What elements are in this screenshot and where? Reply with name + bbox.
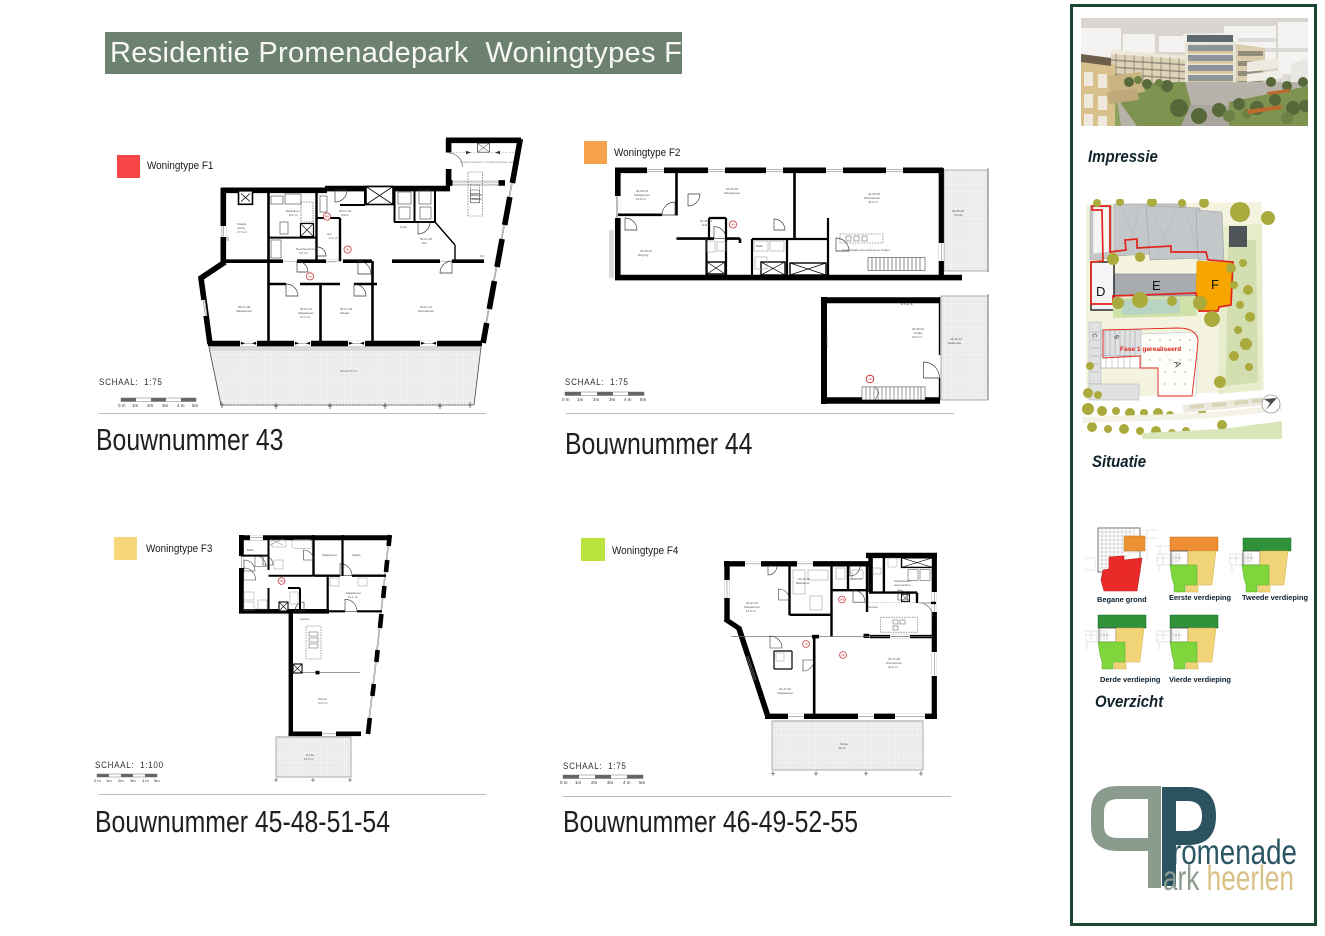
svg-text:Slaapkamer: Slaapkamer [777, 691, 793, 695]
svg-text:43 m²: 43 m² [838, 746, 846, 750]
svg-text:Derde verdieping: Derde verdieping [1100, 675, 1161, 684]
svg-text:Vierde verdieping: Vierde verdieping [1169, 675, 1231, 684]
svg-text:Slaapk.: Slaapk. [352, 553, 362, 557]
svg-text:TR: TR [868, 377, 872, 381]
svg-text:1m: 1m [575, 780, 582, 785]
svg-text:Slaapkamer: Slaapkamer [724, 191, 740, 195]
svg-text:24.6 m²: 24.6 m² [912, 335, 922, 339]
svg-text:44.6 m²: 44.6 m² [888, 665, 898, 669]
svg-text:Slaapkamer: Slaapkamer [322, 553, 337, 557]
svg-text:Opstelplaats wasmachine en dro: Opstelplaats wasmachine en droger [842, 248, 890, 252]
svg-text:2m: 2m [118, 778, 124, 783]
svg-text:WM: WM [731, 223, 735, 226]
svg-text:Entree: Entree [702, 223, 711, 227]
svg-text:02-47-07: 02-47-07 [850, 577, 862, 581]
svg-text:Terras: Terras [954, 213, 963, 217]
svg-text:3m: 3m [130, 778, 136, 783]
svg-text:WM: WM [279, 581, 283, 583]
svg-text:Keuken: Keuken [300, 617, 310, 621]
svg-text:onderbouwkasten 1.1 bediening: onderbouwkasten 1.1 bediening boven aanr… [460, 160, 515, 164]
svg-text:Berging: Berging [638, 253, 649, 257]
svg-text:WM: WM [325, 215, 329, 218]
svg-text:Badk.: Badk. [756, 244, 764, 248]
svg-text:ark heerlen: ark heerlen [1163, 859, 1294, 898]
svg-text:F: F [1211, 277, 1219, 292]
svg-text:6.8 m²: 6.8 m² [299, 251, 308, 255]
svg-text:0 m: 0 m [560, 780, 568, 785]
svg-text:1m: 1m [106, 778, 112, 783]
svg-text:3m: 3m [607, 780, 614, 785]
svg-text:31.6 m²: 31.6 m² [318, 701, 328, 705]
svg-text:19.5 m²: 19.5 m² [304, 757, 314, 761]
svg-text:14.8 m²: 14.8 m² [746, 609, 756, 613]
svg-text:44.2 m²: 44.2 m² [868, 200, 878, 204]
svg-text:Terras 57 m²: Terras 57 m² [340, 369, 357, 373]
svg-text:Hal: Hal [422, 241, 427, 245]
svg-text:Woonkamer: Woonkamer [418, 309, 434, 313]
svg-text:Schsl: Schsl [341, 213, 349, 217]
svg-text:◄ 4.93 ►: ◄ 4.93 ► [825, 335, 829, 348]
svg-text:Keuken: Keuken [868, 605, 879, 609]
svg-text:TR: TR [804, 644, 807, 646]
svg-text:12.1 m²: 12.1 m² [348, 595, 358, 599]
svg-text:Eerste verdieping: Eerste verdieping [1169, 593, 1232, 602]
svg-text:0 m: 0 m [94, 778, 101, 783]
svg-text:E: E [1152, 278, 1161, 293]
svg-text:D: D [1096, 284, 1105, 299]
svg-text:wasmachine: wasmachine [894, 583, 911, 587]
svg-text:Keuken: Keuken [472, 197, 483, 201]
svg-text:1m: 1m [132, 403, 139, 408]
svg-text:Dakterras: Dakterras [948, 341, 962, 345]
svg-text:14.8 m²: 14.8 m² [636, 197, 646, 201]
svg-text:5m: 5m [639, 780, 646, 785]
svg-text:0 m: 0 m [118, 403, 126, 408]
svg-text:WA: WA [346, 248, 350, 251]
svg-text:WM: WM [840, 599, 844, 601]
svg-text:t.p. wand: t.p. wand [327, 260, 337, 263]
svg-text:8.9 m²: 8.9 m² [289, 213, 298, 217]
svg-text:4 m: 4 m [142, 778, 149, 783]
svg-text:Toilet: Toilet [400, 225, 407, 229]
svg-text:Slaapk.: Slaapk. [340, 311, 350, 315]
svg-text:2m: 2m [147, 403, 154, 408]
svg-text:10.2 m²: 10.2 m² [300, 315, 310, 319]
svg-text:Begane grond: Begane grond [1097, 595, 1147, 604]
svg-text:4 m: 4 m [623, 780, 631, 785]
svg-text:5m: 5m [154, 778, 160, 783]
svg-text:4 m: 4 m [177, 403, 185, 408]
svg-text:Fase 1 gerealiseerd: Fase 1 gerealiseerd [1120, 346, 1181, 353]
svg-text:2m: 2m [591, 780, 598, 785]
svg-text:Tweede verdieping: Tweede verdieping [1242, 593, 1308, 602]
svg-text:Slaapkamer: Slaapkamer [236, 309, 252, 313]
svg-text:Badkamer: Badkamer [796, 581, 810, 585]
svg-text:WA: WA [841, 654, 845, 657]
svg-text:9.4 m²: 9.4 m² [329, 236, 338, 240]
svg-text:17.6 m²: 17.6 m² [237, 230, 247, 234]
svg-text:Badk.: Badk. [247, 548, 254, 552]
svg-text:3m: 3m [162, 403, 169, 408]
svg-text:◄ 5.42 ►: ◄ 5.42 ► [900, 302, 913, 306]
